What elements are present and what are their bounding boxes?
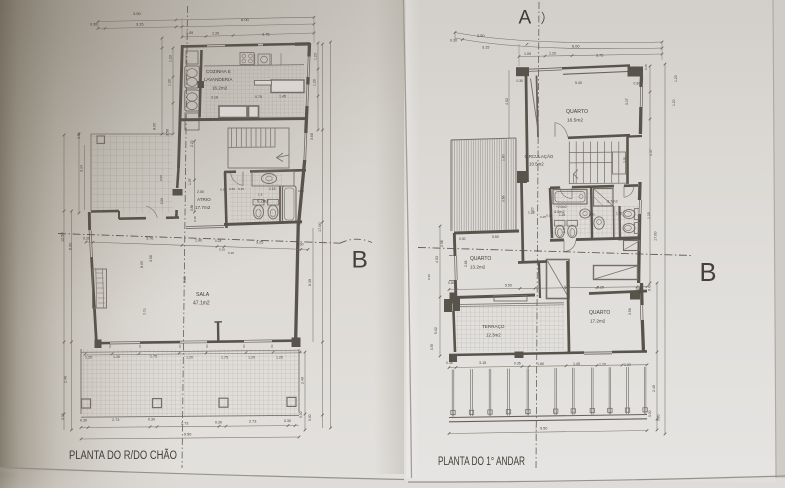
- svg-text:3.75: 3.75: [262, 31, 270, 36]
- svg-text:17.00: 17.00: [318, 222, 322, 232]
- svg-text:0.36: 0.36: [298, 189, 304, 193]
- svg-text:5.40: 5.40: [575, 81, 582, 85]
- svg-text:0.15: 0.15: [238, 187, 244, 191]
- svg-text:10.5m2: 10.5m2: [529, 162, 544, 167]
- svg-text:3.07: 3.07: [625, 98, 629, 105]
- svg-text:0.30: 0.30: [148, 418, 155, 422]
- svg-text:17.2m2: 17.2m2: [590, 319, 606, 324]
- svg-text:4.02: 4.02: [505, 98, 509, 105]
- svg-text:2.20: 2.20: [623, 157, 627, 163]
- svg-text:3.75: 3.75: [596, 54, 603, 58]
- svg-text:3.50: 3.50: [477, 33, 485, 38]
- svg-text:0.15: 0.15: [546, 214, 552, 218]
- svg-text:2.40: 2.40: [652, 385, 656, 392]
- svg-text:3.50: 3.50: [133, 11, 142, 16]
- svg-text:9.50: 9.50: [184, 433, 191, 437]
- svg-text:5.50: 5.50: [505, 284, 512, 288]
- svg-text:8.00: 8.00: [153, 123, 157, 130]
- svg-text:0.15: 0.15: [220, 188, 226, 192]
- svg-text:3.25: 3.25: [597, 286, 604, 290]
- svg-text:3.58: 3.58: [149, 255, 153, 262]
- svg-text:6.00: 6.00: [572, 44, 580, 49]
- svg-text:0.15: 0.15: [193, 216, 197, 222]
- svg-text:1.75: 1.75: [150, 355, 157, 359]
- svg-text:B: B: [352, 247, 368, 274]
- svg-text:0.99: 0.99: [160, 198, 164, 204]
- svg-text:1.20: 1.20: [85, 356, 92, 360]
- svg-text:17.7m2: 17.7m2: [195, 205, 211, 210]
- svg-text:0.30: 0.30: [459, 237, 466, 241]
- svg-text:3.14: 3.14: [80, 165, 84, 172]
- svg-text:1.9: 1.9: [258, 193, 263, 197]
- svg-text:3.68: 3.68: [310, 133, 314, 140]
- svg-text:1.20: 1.20: [313, 79, 317, 86]
- svg-text:2.20: 2.20: [190, 140, 194, 147]
- svg-text:17.00: 17.00: [654, 231, 658, 241]
- svg-text:13.2m2: 13.2m2: [470, 265, 486, 270]
- svg-text:0.30: 0.30: [284, 419, 291, 423]
- svg-text:1.23: 1.23: [674, 75, 678, 82]
- svg-text:0.30: 0.30: [297, 243, 304, 247]
- svg-text:TERRAÇO: TERRAÇO: [482, 324, 505, 329]
- svg-text:1.57: 1.57: [188, 178, 192, 185]
- svg-text:6.39: 6.39: [308, 279, 312, 286]
- svg-text:1.05: 1.05: [524, 52, 531, 56]
- svg-text:0.15: 0.15: [540, 215, 546, 219]
- svg-text:0.84: 0.84: [229, 187, 235, 191]
- svg-text:1.20: 1.20: [248, 356, 255, 360]
- svg-text:2.88: 2.88: [464, 260, 468, 267]
- svg-text:1.75: 1.75: [221, 356, 228, 360]
- svg-text:0.15: 0.15: [564, 285, 570, 289]
- svg-text:7.70: 7.70: [143, 308, 147, 315]
- svg-text:QUARTO: QUARTO: [470, 256, 491, 262]
- svg-text:B: B: [700, 259, 717, 287]
- svg-text:1.80: 1.80: [502, 154, 506, 161]
- svg-text:3.18: 3.18: [211, 96, 218, 100]
- svg-text:3.66: 3.66: [502, 195, 506, 202]
- svg-text:0.30: 0.30: [450, 39, 457, 43]
- svg-text:QUARTO: QUARTO: [589, 310, 610, 316]
- svg-text:3.25: 3.25: [256, 241, 263, 245]
- svg-text:0.30: 0.30: [77, 132, 81, 139]
- svg-text:COZINHA E: COZINHA E: [206, 69, 231, 74]
- svg-text:LAVANDERIA: LAVANDERIA: [204, 77, 233, 82]
- svg-text:0.30: 0.30: [80, 419, 87, 423]
- svg-text:16.2m2: 16.2m2: [212, 86, 228, 91]
- svg-text:0.35: 0.35: [589, 213, 595, 217]
- svg-text:1.20: 1.20: [531, 207, 535, 214]
- svg-text:2.98: 2.98: [440, 240, 444, 247]
- svg-text:1.23: 1.23: [314, 53, 318, 60]
- svg-text:1.23: 1.23: [169, 55, 173, 62]
- svg-text:0.15: 0.15: [219, 248, 225, 252]
- svg-text:0.35: 0.35: [514, 362, 521, 366]
- svg-text:5.50: 5.50: [492, 235, 499, 239]
- svg-text:+2.0m2: +2.0m2: [556, 205, 567, 209]
- svg-text:2.73: 2.73: [112, 418, 119, 422]
- svg-text:2.18: 2.18: [269, 187, 276, 191]
- svg-text:9.50: 9.50: [540, 427, 547, 431]
- svg-text:0.30: 0.30: [299, 411, 303, 418]
- svg-text:5.40: 5.40: [183, 276, 187, 283]
- svg-text:1.80: 1.80: [537, 362, 544, 366]
- svg-text:0.30: 0.30: [648, 410, 652, 417]
- svg-text:16.5m2: 16.5m2: [567, 118, 583, 124]
- svg-text:1.55: 1.55: [616, 212, 622, 216]
- svg-text:0.30: 0.30: [61, 413, 65, 420]
- svg-text:4.37: 4.37: [649, 149, 653, 156]
- svg-text:12.3m2: 12.3m2: [486, 333, 501, 338]
- svg-text:0.30: 0.30: [634, 82, 641, 86]
- svg-text:0.30: 0.30: [308, 414, 312, 421]
- svg-text:6.00: 6.00: [69, 243, 73, 250]
- svg-text:0.15: 0.15: [228, 251, 234, 255]
- svg-text:1.20: 1.20: [186, 356, 193, 360]
- svg-text:0.30: 0.30: [427, 274, 431, 280]
- svg-text:PLANTA DO 1° ANDAR: PLANTA DO 1° ANDAR: [438, 455, 525, 468]
- svg-text:2.73: 2.73: [249, 420, 256, 424]
- svg-text:3.58: 3.58: [166, 129, 170, 136]
- svg-text:ATRIO: ATRIO: [197, 197, 211, 202]
- svg-text:1.20: 1.20: [113, 355, 120, 359]
- svg-text:1.25: 1.25: [559, 213, 565, 217]
- svg-text:A: A: [519, 8, 532, 29]
- svg-text:0.30: 0.30: [638, 287, 642, 293]
- svg-text:0.15: 0.15: [644, 64, 648, 70]
- svg-text:6.2m2: 6.2m2: [257, 199, 269, 204]
- svg-text:0.30: 0.30: [517, 79, 524, 83]
- svg-text:1.20: 1.20: [212, 32, 219, 36]
- svg-text:3.15: 3.15: [482, 46, 489, 50]
- svg-text:0.75: 0.75: [255, 95, 262, 99]
- svg-text:2.40: 2.40: [64, 376, 68, 383]
- svg-text:1.20: 1.20: [647, 212, 651, 219]
- svg-text:0.86: 0.86: [190, 205, 194, 211]
- svg-text:47.1m2: 47.1m2: [193, 301, 210, 307]
- svg-text:2.73: 2.73: [181, 422, 188, 426]
- svg-text:1.20: 1.20: [599, 363, 606, 367]
- svg-text:QUARTO: QUARTO: [566, 109, 588, 115]
- svg-text:0.30: 0.30: [657, 414, 661, 421]
- svg-text:1.45: 1.45: [279, 95, 286, 99]
- svg-text:5.02: 5.02: [434, 327, 438, 334]
- svg-text:3.15: 3.15: [136, 21, 144, 26]
- svg-text:12.50: 12.50: [61, 232, 65, 242]
- svg-text:1.20: 1.20: [672, 99, 676, 106]
- svg-text:4.03: 4.03: [435, 256, 439, 263]
- svg-text:1.20: 1.20: [549, 52, 556, 56]
- svg-text:2.40: 2.40: [301, 377, 305, 384]
- svg-text:0.35: 0.35: [430, 344, 434, 350]
- svg-text:SALA: SALA: [196, 292, 210, 298]
- svg-text:0.35: 0.35: [446, 361, 453, 365]
- svg-text:CIRCULAÇÃO: CIRCULAÇÃO: [525, 154, 554, 159]
- svg-text:3.15: 3.15: [479, 361, 486, 365]
- svg-text:6.00: 6.00: [241, 17, 250, 22]
- svg-text:0.30: 0.30: [90, 23, 97, 27]
- svg-text:1.20: 1.20: [168, 79, 172, 86]
- svg-text:0.15: 0.15: [562, 227, 566, 233]
- svg-text:0.30: 0.30: [83, 237, 90, 241]
- svg-text:0.24: 0.24: [215, 239, 222, 243]
- svg-text:3.7m2: 3.7m2: [607, 200, 618, 204]
- svg-text:1.20: 1.20: [276, 356, 283, 360]
- svg-text:PLANTA DO R/DO CHÃO: PLANTA DO R/DO CHÃO: [69, 448, 177, 462]
- svg-text:0.09: 0.09: [159, 175, 163, 181]
- svg-text:2.00: 2.00: [197, 190, 204, 194]
- svg-text:8.00: 8.00: [140, 261, 144, 268]
- svg-text:0.30: 0.30: [215, 421, 222, 425]
- svg-text:3.56: 3.56: [628, 308, 632, 315]
- svg-text:0.30: 0.30: [448, 281, 454, 285]
- svg-text:6.00: 6.00: [648, 284, 652, 291]
- svg-text:1.90: 1.90: [195, 239, 202, 243]
